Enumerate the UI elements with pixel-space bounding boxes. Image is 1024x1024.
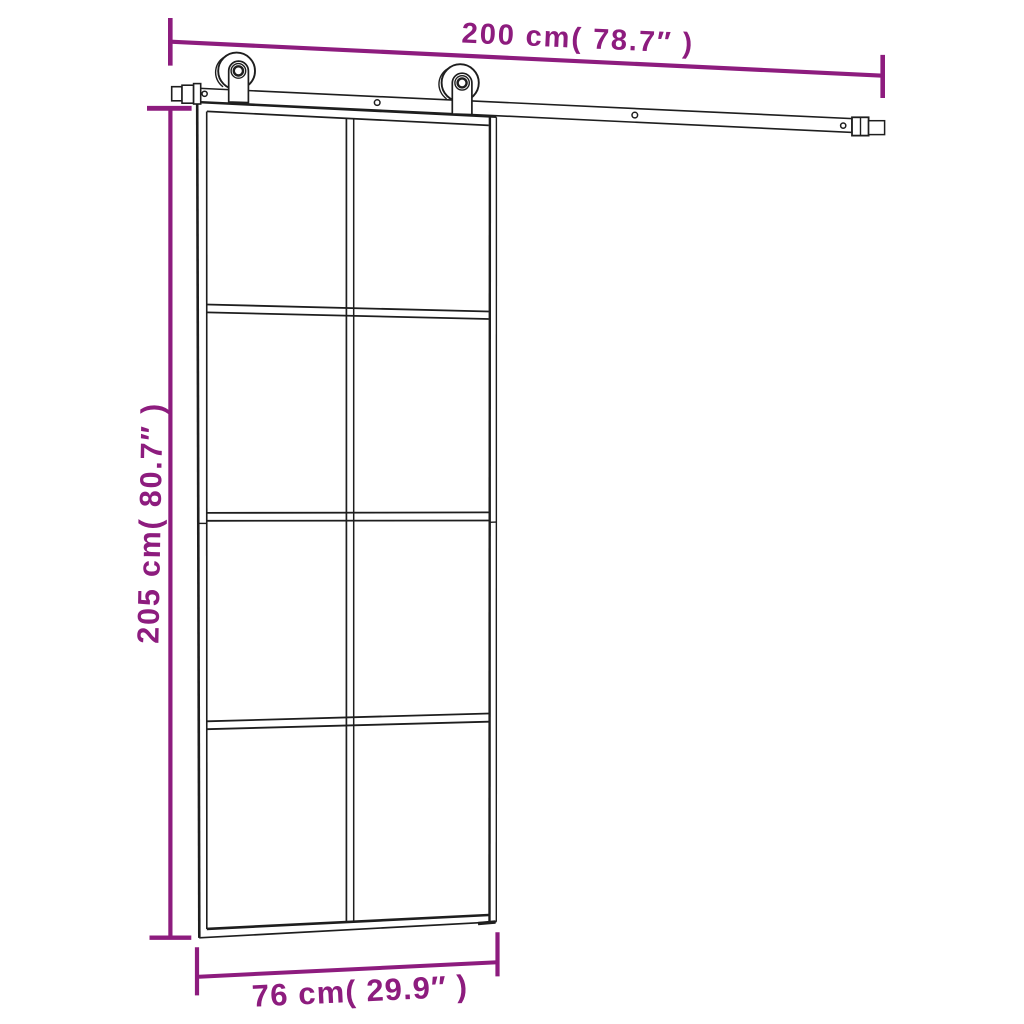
svg-text:205 cm( 80.7″ ): 205 cm( 80.7″ ) (131, 402, 169, 644)
